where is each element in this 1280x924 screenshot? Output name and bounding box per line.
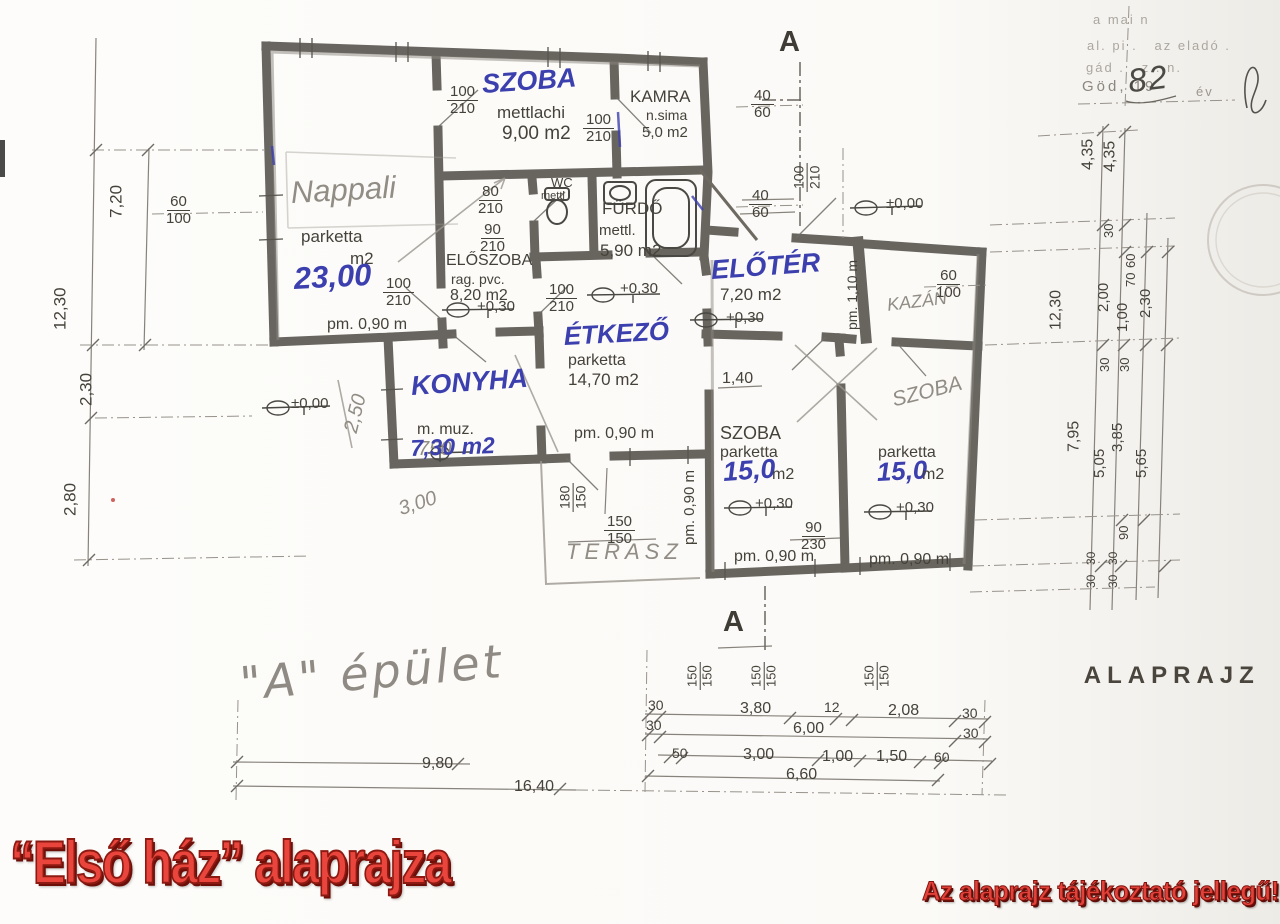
right-435a: 4,35 bbox=[1080, 139, 1097, 170]
caption-label: ALAPRAJZ bbox=[1084, 662, 1260, 689]
etkezo-door-size: 100210 bbox=[546, 282, 577, 315]
scan-header-line2: al. pi . az eladó . bbox=[1087, 38, 1231, 53]
eloszoba-level: +0,30 bbox=[477, 299, 515, 315]
right-385: 3,85 bbox=[1110, 423, 1126, 452]
left-230: 2,30 bbox=[78, 373, 96, 406]
right-1230: 12,30 bbox=[1048, 290, 1065, 330]
right-435b: 4,35 bbox=[1102, 141, 1119, 172]
right-30a: 30 bbox=[1102, 224, 1116, 238]
right-30g: 30 bbox=[1107, 575, 1120, 588]
left-1230: 12,30 bbox=[52, 287, 70, 330]
bottom-300: 3,00 bbox=[743, 746, 774, 763]
nappali-area: 23,00 bbox=[293, 258, 372, 295]
wc-door-size: 80210 bbox=[478, 184, 503, 217]
etkezo-parapet: pm. 0,90 m bbox=[574, 425, 654, 442]
right-30e: 30 bbox=[1107, 552, 1120, 565]
eloter-level: +0,30 bbox=[726, 310, 764, 326]
disclaimer-note: Az alaprajz tájékoztató jellegű! bbox=[922, 876, 1279, 907]
left-window: 60100 bbox=[166, 194, 191, 227]
szoba2-parapet-side: pm. 0,90 m bbox=[682, 470, 698, 545]
szoba1-door-size: 100210 bbox=[447, 84, 478, 117]
bottom-30c: 30 bbox=[646, 718, 662, 733]
page-title: “Első ház” alaprajza bbox=[10, 828, 450, 897]
right-30b: 30 bbox=[1098, 358, 1112, 372]
etkezo-finish: parketta bbox=[568, 352, 626, 369]
szoba3-level: +0,30 bbox=[896, 500, 934, 516]
wc-finish: mettl bbox=[541, 191, 565, 203]
kamra-area: 5,0 m2 bbox=[642, 125, 688, 141]
szoba2-area-unit: m2 bbox=[772, 466, 794, 483]
drawing-caption: ALAPRAJZ( M bbox=[1034, 634, 1280, 718]
eloszoba-finish: rag. pvc. bbox=[451, 272, 505, 287]
bottom-150150-b: 150150 bbox=[750, 662, 778, 690]
left-720: 7,20 bbox=[108, 185, 126, 218]
right-30f: 30 bbox=[1085, 575, 1098, 588]
nappali-door-size: 100210 bbox=[383, 276, 414, 309]
terasz-dim-150150: 150150 bbox=[604, 514, 635, 547]
eloszoba-door-size: 90210 bbox=[480, 222, 505, 255]
bottom-12: 12 bbox=[824, 700, 840, 715]
nappali-parapet: pm. 0,90 m bbox=[327, 316, 407, 333]
szoba2-name: SZOBA bbox=[720, 424, 781, 443]
right-230: 2,30 bbox=[1138, 289, 1154, 318]
furdo-name: FÜRDŐ bbox=[602, 200, 662, 218]
kazan-parapet: pm. 1,10 m bbox=[845, 260, 860, 330]
section-marker-a-bottom: A bbox=[723, 606, 745, 639]
wc-name: WC bbox=[551, 176, 573, 190]
section-marker-a-top: A bbox=[779, 26, 801, 59]
szoba2-level: +0,30 bbox=[755, 496, 793, 512]
red-dot-artifact bbox=[111, 498, 115, 502]
eloter-area: 7,20 m2 bbox=[720, 286, 781, 304]
etkezo-level: +0,30 bbox=[620, 281, 658, 297]
bottom-980: 9,80 bbox=[422, 755, 453, 772]
bottom-60: 60 bbox=[934, 750, 950, 765]
nappali-finish: parketta bbox=[301, 228, 362, 246]
etkezo-area: 14,70 m2 bbox=[568, 371, 639, 389]
bottom-208: 2,08 bbox=[888, 702, 919, 719]
right-30c: 30 bbox=[1118, 358, 1132, 372]
dim-140: 1,40 bbox=[722, 370, 753, 387]
bottom-30d: 30 bbox=[963, 726, 979, 741]
right-100: 1,00 bbox=[1115, 303, 1131, 332]
bottom-50: 50 bbox=[672, 746, 688, 761]
right-90: 90 bbox=[1117, 526, 1131, 540]
scan-edge-artifact bbox=[0, 140, 5, 177]
left-280: 2,80 bbox=[62, 483, 80, 516]
kamra-door-size: 100210 bbox=[583, 112, 614, 145]
eloszoba-name: ELŐSZOBA bbox=[446, 252, 532, 269]
konyha-level: ±0,00 bbox=[291, 396, 328, 412]
szoba1-finish: mettlachi bbox=[497, 104, 565, 122]
furdo-area: 5,90 m2 bbox=[600, 242, 661, 260]
bottom-1640: 16,40 bbox=[514, 778, 554, 795]
szoba1-area: 9,00 m2 bbox=[502, 124, 571, 145]
nappali-name: Nappali bbox=[290, 170, 397, 209]
scan-header-year-handwritten: 82 bbox=[1126, 58, 1171, 101]
walls bbox=[266, 46, 982, 574]
right-70: 70 bbox=[1124, 273, 1138, 287]
furdo-finish: mettl. bbox=[599, 223, 636, 239]
bottom-380: 3,80 bbox=[740, 700, 771, 717]
bottom-30a: 30 bbox=[648, 698, 664, 713]
dim-4060-mid: 4060 bbox=[749, 188, 772, 221]
stamp bbox=[1208, 185, 1280, 295]
konyha-area: 7,30 m2 bbox=[410, 433, 495, 461]
entry-level: ±0,00 bbox=[886, 196, 923, 212]
bottom-100: 1,00 bbox=[822, 748, 853, 765]
scanned-floor-plan-page: SZOBAmettlachi9,00 m2100210100210KAMRAn.… bbox=[0, 0, 1280, 924]
bottom-150150-a: 150150 bbox=[686, 662, 714, 690]
right-505: 5,05 bbox=[1092, 449, 1108, 478]
right-200: 2,00 bbox=[1096, 283, 1112, 312]
bottom-30b: 30 bbox=[962, 706, 978, 721]
bottom-660: 6,60 bbox=[786, 766, 817, 783]
szoba3-area: 15,0 bbox=[876, 455, 928, 486]
szoba3-area-unit: m2 bbox=[922, 466, 944, 483]
signature bbox=[1245, 67, 1266, 112]
right-565: 5,65 bbox=[1134, 449, 1150, 478]
bottom-150150-c: 150150 bbox=[863, 662, 891, 690]
kamra-name: KAMRA bbox=[630, 88, 690, 106]
right-60: 60 bbox=[1124, 254, 1138, 268]
kamra-finish: n.sima bbox=[646, 108, 687, 123]
szoba3-parapet: pm. 0,90 m bbox=[869, 551, 949, 568]
scan-header-line1: a mai n bbox=[1093, 12, 1150, 27]
kazan-window: 60100 bbox=[936, 268, 961, 301]
eloter-door-size: 100210 bbox=[792, 163, 822, 192]
right-795: 7,95 bbox=[1066, 421, 1083, 452]
wall-shading bbox=[270, 50, 978, 572]
szoba2-parapet: pm. 0,90 m bbox=[734, 548, 814, 565]
right-30d: 30 bbox=[1085, 552, 1098, 565]
bottom-600: 6,00 bbox=[793, 720, 824, 737]
scan-header-date-suffix: év bbox=[1196, 84, 1214, 99]
etkezo-name: ÉTKEZŐ bbox=[563, 316, 670, 350]
terasz-dim-180150: 180150 bbox=[558, 483, 588, 512]
szoba2-area: 15,0 bbox=[722, 454, 776, 487]
dim-4060-top: 4060 bbox=[751, 88, 774, 121]
bottom-150: 1,50 bbox=[876, 748, 907, 765]
